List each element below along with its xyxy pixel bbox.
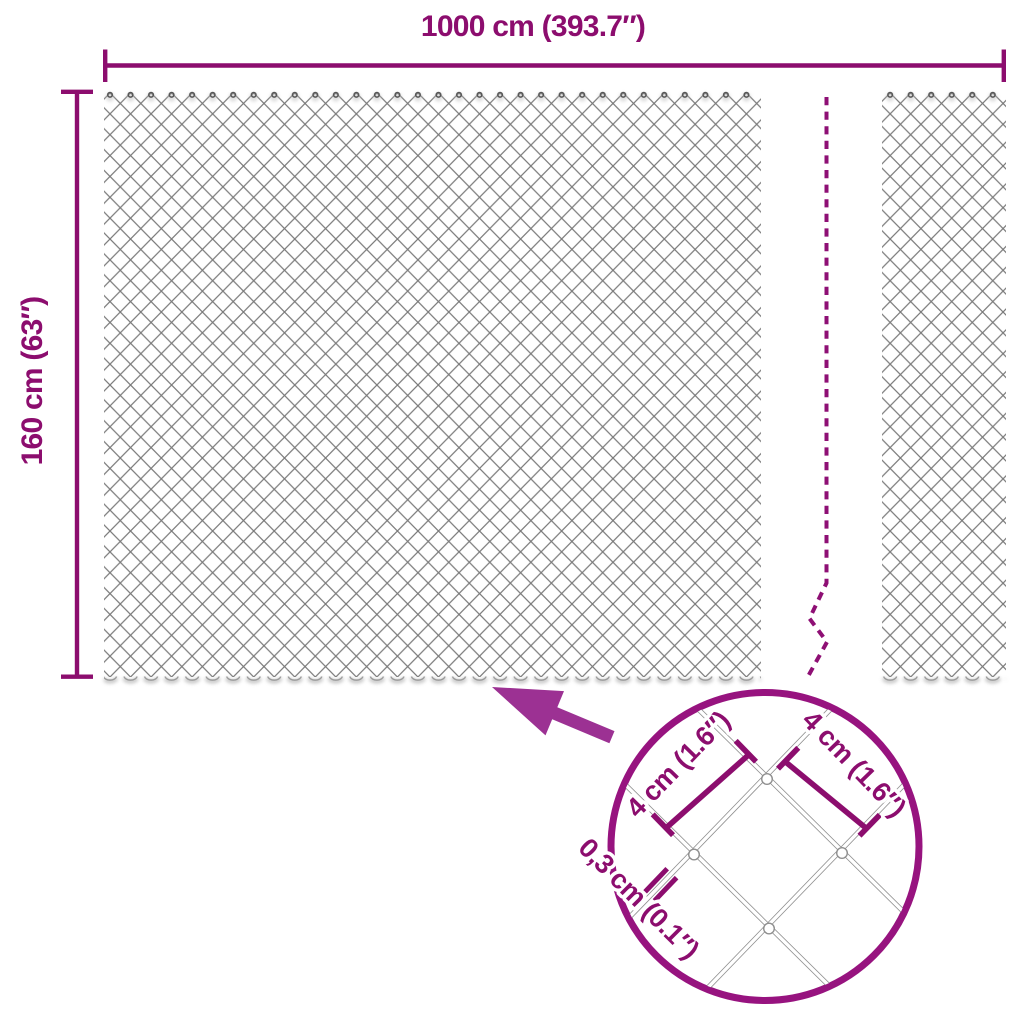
svg-text:160 cm (63″): 160 cm (63″) xyxy=(16,297,49,466)
svg-text:1000 cm (393.7″): 1000 cm (393.7″) xyxy=(421,10,645,43)
